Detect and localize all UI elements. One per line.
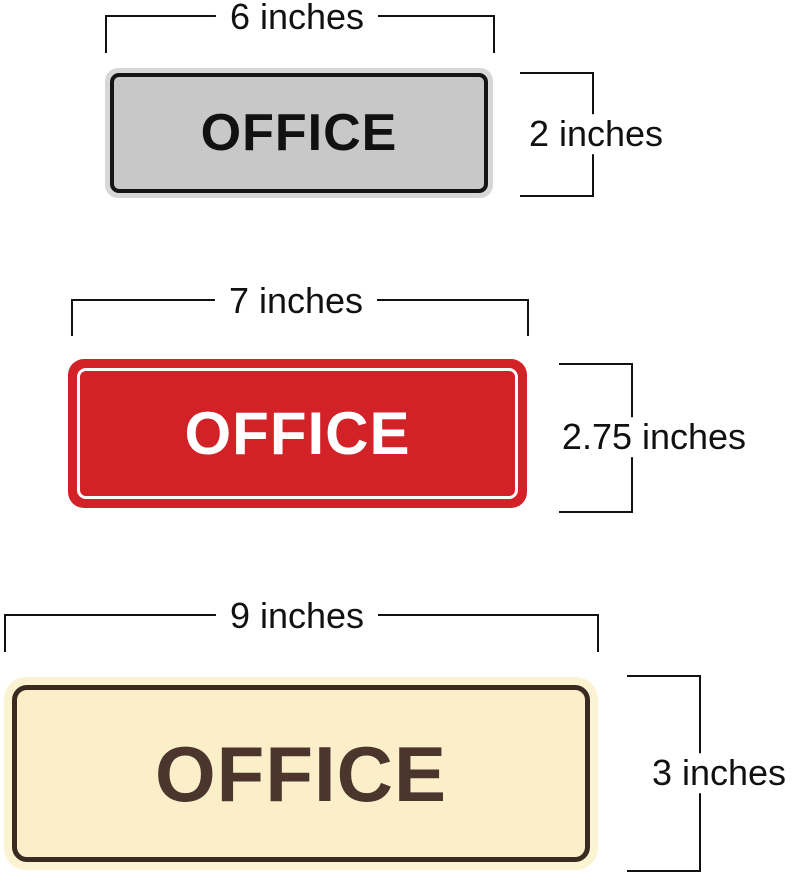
height-dimension-label: 2.75 inches xyxy=(548,417,760,457)
height-dimension-label: 2 inches xyxy=(515,114,677,154)
height-dimension-tick-bottom xyxy=(559,511,633,513)
width-dimension-tick-left xyxy=(105,15,107,53)
office-sign-cream: OFFICE xyxy=(4,677,598,870)
height-dimension-tick-bottom xyxy=(520,195,594,197)
width-dimension-tick-right xyxy=(597,614,599,652)
width-dimension-label: 6 inches xyxy=(216,0,378,37)
height-dimension-tick-top xyxy=(520,72,594,74)
sign-text: OFFICE xyxy=(185,404,411,464)
height-dimension-tick-top xyxy=(627,675,701,677)
width-dimension-label: 7 inches xyxy=(215,281,377,321)
office-sign-red: OFFICE xyxy=(68,359,527,508)
width-dimension-tick-right xyxy=(527,299,529,336)
sign-face: OFFICE xyxy=(77,368,518,499)
office-sign-dimension-diagram: 6 inches OFFICE 2 inches 7 inches OFFICE… xyxy=(0,0,795,876)
sign-face: OFFICE xyxy=(12,685,590,862)
width-dimension-label: 9 inches xyxy=(216,596,378,636)
sign-face: OFFICE xyxy=(110,73,488,193)
sign-text: OFFICE xyxy=(155,735,447,813)
height-dimension-tick-bottom xyxy=(627,870,701,872)
height-dimension-label: 3 inches xyxy=(638,753,795,793)
office-sign-gray: OFFICE xyxy=(105,68,493,198)
width-dimension-tick-left xyxy=(71,299,73,336)
width-dimension-tick-right xyxy=(493,15,495,53)
width-dimension-tick-left xyxy=(4,614,6,652)
height-dimension-tick-top xyxy=(559,363,633,365)
sign-text: OFFICE xyxy=(201,107,398,159)
